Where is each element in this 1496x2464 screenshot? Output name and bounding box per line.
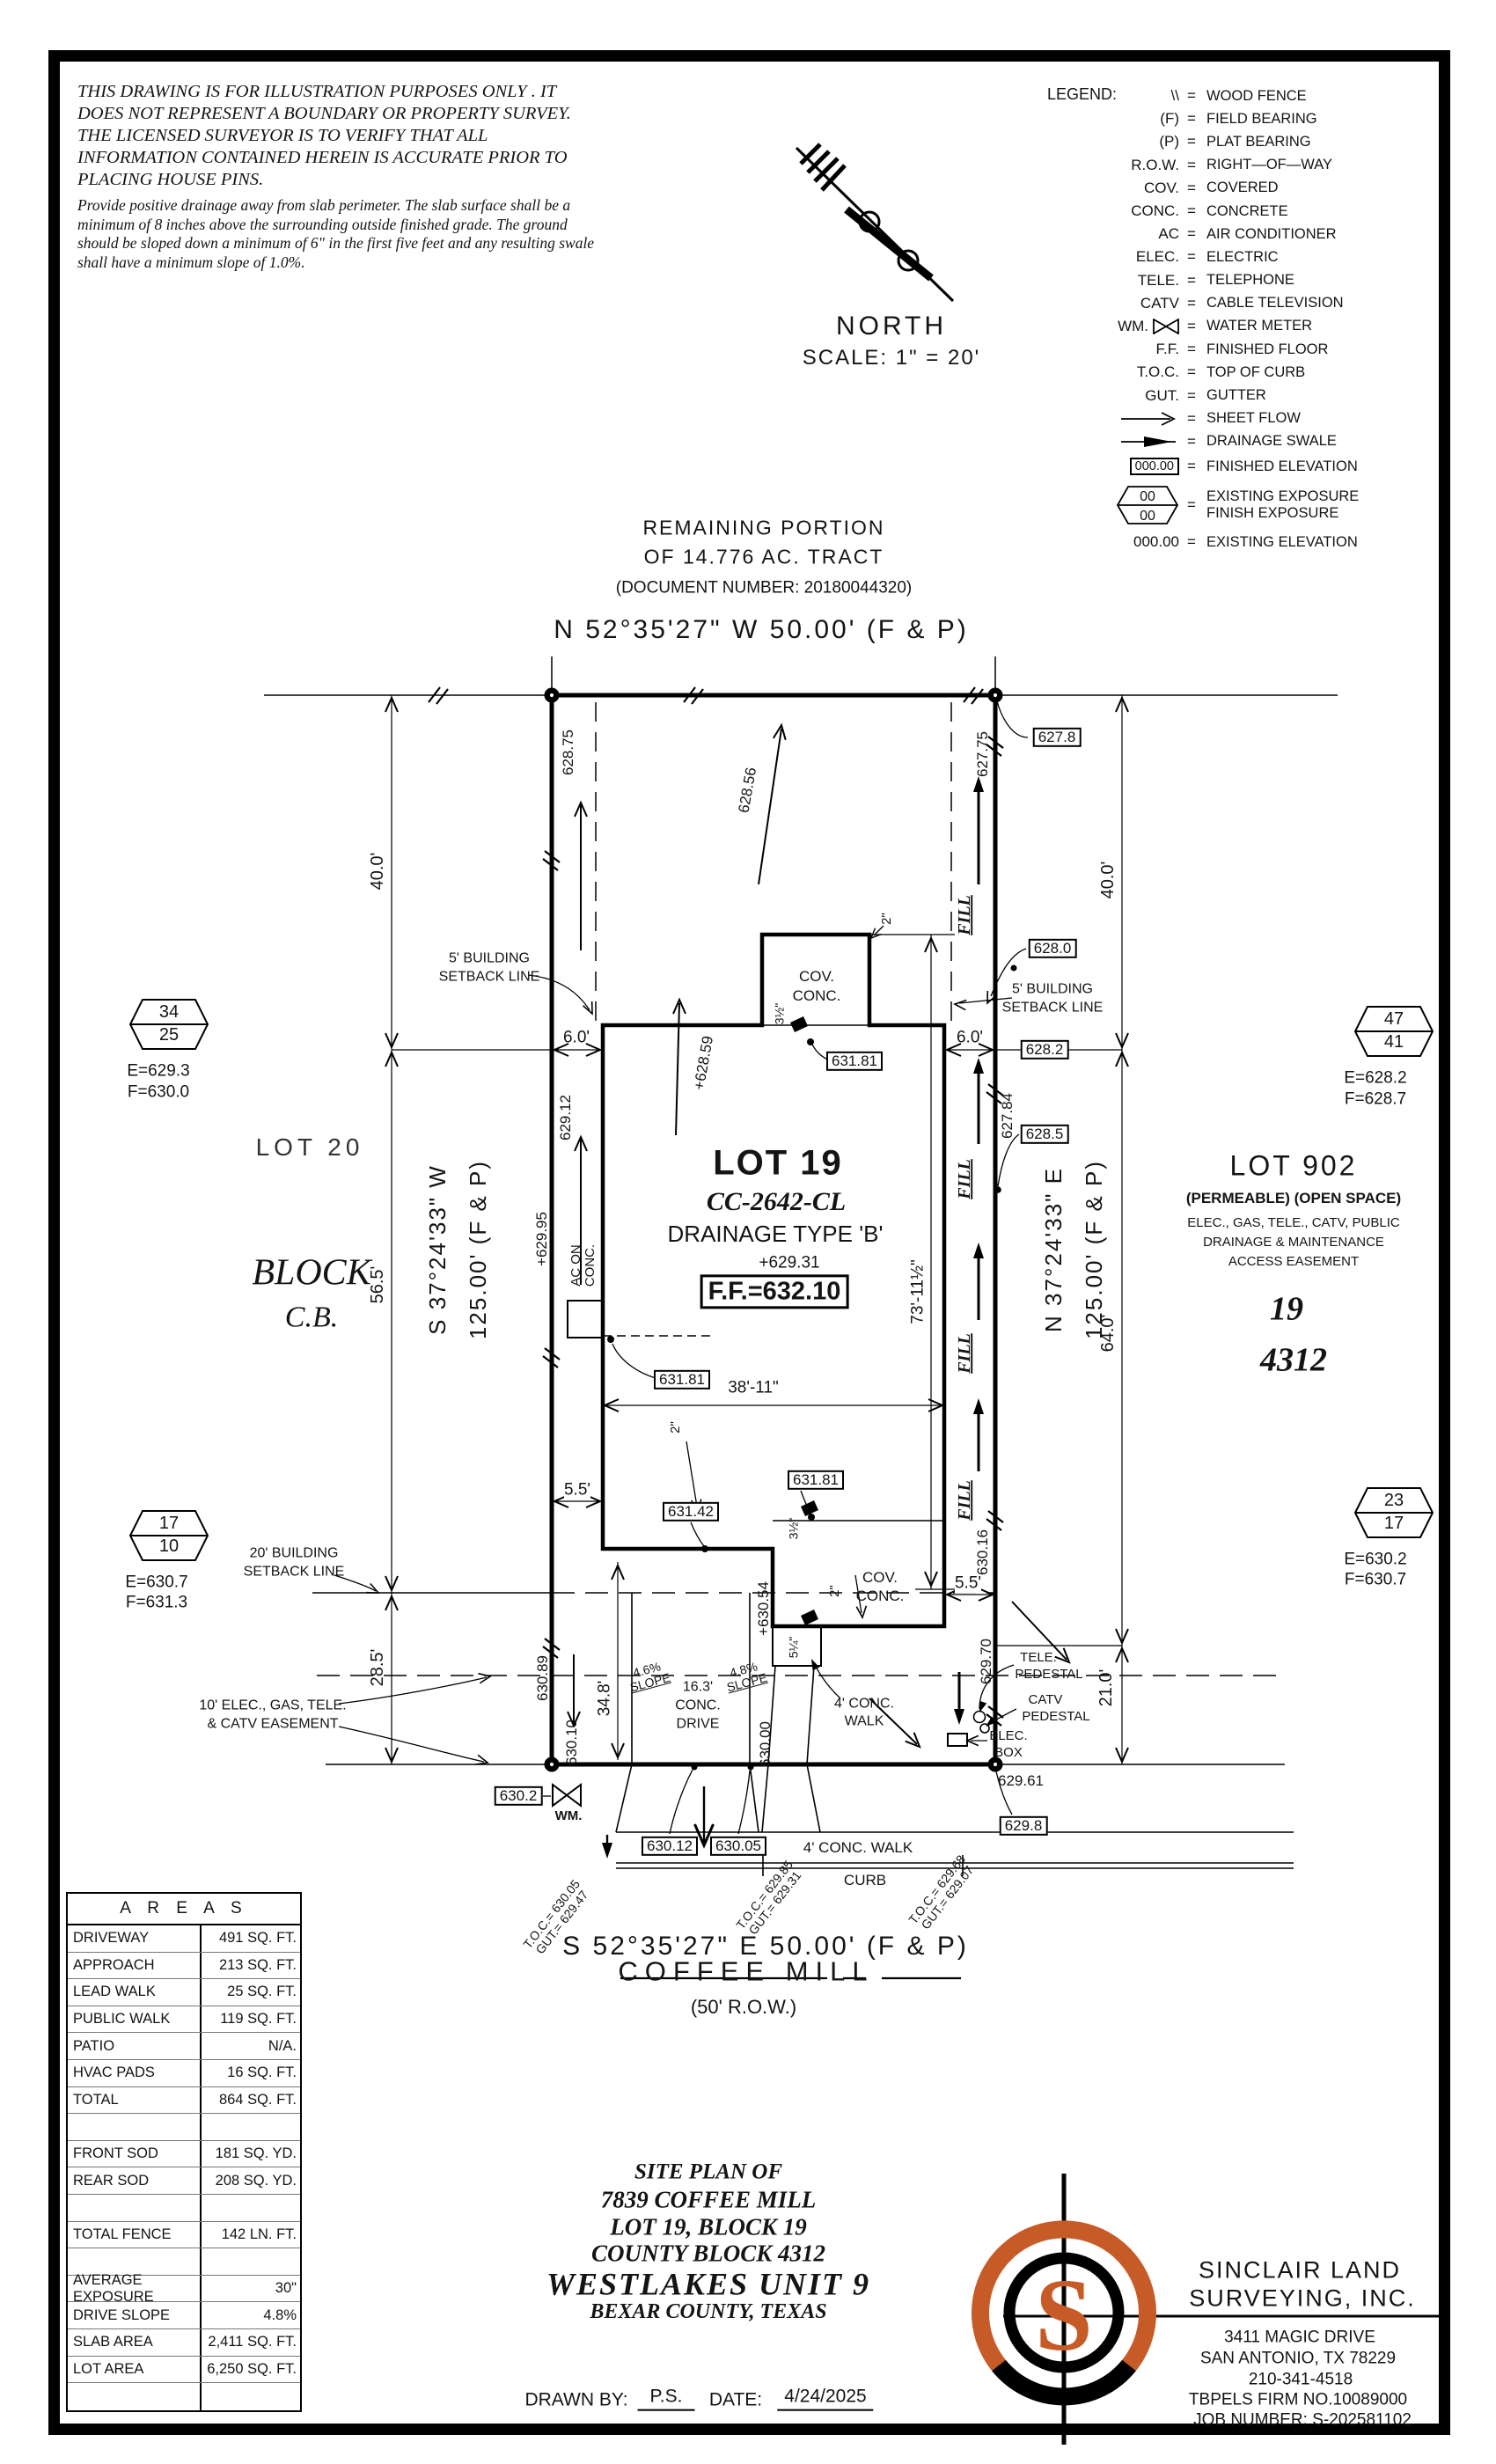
setback20-l1: 20' BUILDING	[250, 1545, 339, 1560]
logo-letter: S	[1035, 2257, 1093, 2372]
legend-row: CONC.=CONCRETE	[1045, 200, 1443, 223]
drawn-by-label: DRAWN BY:	[524, 2391, 627, 2411]
water-meter-label: WM.	[555, 1809, 583, 1823]
tele-pedestal-l2: PEDESTAL	[1015, 1668, 1082, 1682]
finished-floor-elev: F.F.=632.10	[700, 1274, 849, 1309]
hex-tr-existing: E=628.2	[1344, 1070, 1406, 1089]
elev-box-631-81-b: 631.81	[654, 1370, 710, 1390]
legend-row: CATV=CABLE TELEVISION	[1045, 292, 1443, 315]
easement10-l1: 10' ELEC., GAS, TELE.	[199, 1698, 346, 1712]
table-row: HVAC PADS16 SQ. FT.	[68, 2060, 300, 2087]
company-name-l1: SINCLAIR LAND	[1199, 2257, 1401, 2283]
elec-box-l1: ELEC.	[989, 1729, 1027, 1743]
legend: \\=WOOD FENCE (F)=FIELD BEARING (P)=PLAT…	[1045, 84, 1443, 554]
table-row: SLAB AREA2,411 SQ. FT.	[68, 2329, 300, 2357]
table-row	[68, 2195, 300, 2222]
tract-line2: OF 14.776 AC. TRACT	[644, 546, 884, 568]
spot-630-89: 630.89	[535, 1655, 551, 1701]
bearing-east-len: 125.00' (F & P)	[1082, 1160, 1106, 1339]
hex-br-existing: E=630.2	[1344, 1551, 1406, 1570]
dim-5quarter-step: 5¼"	[787, 1637, 800, 1658]
job-number: JOB NUMBER: S-202581102	[1193, 2412, 1412, 2431]
spot-630-16: 630.16	[975, 1529, 991, 1575]
legend-row: =DRAINAGE SWALE	[1045, 430, 1443, 453]
title-l2: 7839 COFFEE MILL	[601, 2187, 817, 2212]
spot-629-61: 629.61	[998, 1773, 1044, 1789]
dim-2-patio: 2"	[828, 1585, 842, 1597]
site-plan-sheet: S THIS DRAWING IS FOR ILLUSTRATION PURPO…	[0, 0, 1496, 2464]
lot902-l4: ACCESS EASEMENT	[1228, 1255, 1359, 1269]
table-row: DRIVEWAY491 SQ. FT.	[68, 1925, 300, 1953]
elev-box-631-81-a: 631.81	[826, 1052, 883, 1071]
table-row: REAR SOD208 SQ. YD.	[68, 2167, 300, 2195]
ac-pad	[568, 1301, 603, 1338]
dim-5-5-right: 5.5'	[955, 1575, 981, 1594]
legend-row: GUT.=GUTTER	[1045, 384, 1443, 407]
lot20-label: LOT 20	[256, 1134, 364, 1161]
date-value: 4/24/2025	[777, 2387, 873, 2411]
table-row: FRONT SOD181 SQ. YD.	[68, 2141, 300, 2168]
legend-row: WM. =WATER METER	[1045, 315, 1443, 338]
table-row: TOTAL FENCE142 LN. FT.	[68, 2222, 300, 2249]
elev-box-628-0: 628.0	[1029, 939, 1077, 958]
dim-40-left: 40.0'	[369, 853, 388, 891]
company-address-l2: SAN ANTONIO, TX 78229	[1200, 2350, 1396, 2369]
bearing-east-dir: N 37°24'33" E	[1041, 1167, 1066, 1332]
hex-tr-bot: 41	[1384, 1033, 1404, 1052]
elev-box-631-42: 631.42	[663, 1502, 719, 1522]
legend-row: 000.00 =FINISHED ELEVATION	[1045, 453, 1443, 480]
dim-73-11: 73'-11½"	[910, 1259, 928, 1324]
table-row	[68, 2114, 300, 2141]
table-row	[68, 2383, 300, 2410]
drive-conc: CONC.	[675, 1698, 721, 1712]
legend-row: TELE.=TELEPHONE	[1045, 269, 1443, 292]
table-row: PATION/A.	[68, 2033, 300, 2060]
date-label: DATE:	[709, 2391, 762, 2411]
setback5-right-l1: 5' BUILDING	[1012, 981, 1093, 996]
elev-box-628-5: 628.5	[1021, 1125, 1069, 1144]
legend-row: R.O.W.=RIGHT—OF—WAY	[1045, 154, 1443, 177]
svg-text:00: 00	[1140, 489, 1155, 504]
legend-row: ELEC.=ELECTRIC	[1045, 246, 1443, 268]
spot-627-75: 627.75	[975, 731, 991, 777]
elev-box-630-05: 630.05	[710, 1837, 766, 1856]
water-meter-icon	[1153, 319, 1179, 334]
dim-5-5-left: 5.5'	[564, 1482, 590, 1500]
legend-row: =SHEET FLOW	[1045, 407, 1443, 430]
north-arrow-icon	[796, 144, 953, 301]
fill-label: FILL	[956, 1480, 975, 1521]
table-row: AVERAGE EXPOSURE30"	[68, 2276, 300, 2303]
title-l4: COUNTY BLOCK 4312	[591, 2240, 825, 2266]
street-name: COFFEE MILL	[618, 1956, 874, 1985]
walk-plan-l1: 4' CONC.	[834, 1696, 894, 1711]
legend-row: (P)=PLAT BEARING	[1045, 130, 1443, 153]
dim-2-porch: 2"	[880, 913, 894, 925]
fill-label: FILL	[956, 1333, 975, 1374]
title-l3: LOT 19, BLOCK 19	[610, 2214, 807, 2240]
tract-line1: REMAINING PORTION	[642, 517, 884, 539]
lot19-label: LOT 19	[713, 1144, 843, 1182]
areas-table-title: A R E A S	[68, 1894, 300, 1925]
spot-630-54: +630.54	[756, 1581, 772, 1636]
street-row: (50' R.O.W.)	[691, 1997, 796, 2018]
easement10-l2: & CATV EASEMENT	[207, 1716, 338, 1731]
wood-fence-icon: \\	[1045, 87, 1187, 105]
title-l6: BEXAR COUNTY, TEXAS	[590, 2301, 826, 2324]
elev-box-629-8: 629.8	[1000, 1816, 1048, 1836]
title-l5: WESTLAKES UNIT 9	[546, 2268, 870, 2302]
hex-bl-bot: 10	[159, 1537, 179, 1557]
spot-630-10: 630.10	[564, 1720, 580, 1765]
hex-tr-finish: F=628.7	[1345, 1091, 1406, 1110]
company-phone: 210-341-4518	[1249, 2372, 1353, 2390]
hex-br-finish: F=630.7	[1345, 1572, 1406, 1590]
hex-tl-bot: 25	[159, 1026, 179, 1045]
lot19-spot-elev: +629.31	[759, 1255, 819, 1273]
disclaimer-note: THIS DRAWING IS FOR ILLUSTRATION PURPOSE…	[77, 81, 605, 273]
hex-tr-top: 47	[1384, 1010, 1404, 1030]
legend-row: COV.=COVERED	[1045, 177, 1443, 200]
drive-drive: DRIVE	[677, 1716, 720, 1731]
svg-text:00: 00	[1140, 509, 1155, 524]
lot902-l3: DRAINAGE & MAINTENANCE	[1203, 1236, 1384, 1250]
lot902-block: 19	[1270, 1291, 1303, 1327]
legend-row: 000.00=EXISTING ELEVATION	[1045, 531, 1443, 554]
spot-629-95: +629.95	[534, 1212, 550, 1266]
dim-34-8: 34.8'	[597, 1681, 615, 1717]
title-l1: SITE PLAN OF	[634, 2160, 782, 2184]
north-label: NORTH	[836, 312, 947, 341]
elev-box-627-8: 627.8	[1033, 728, 1082, 747]
drawn-by-value: P.S.	[638, 2387, 695, 2411]
hex-tl-existing: E=629.3	[127, 1063, 189, 1082]
table-row: APPROACH213 SQ. FT.	[68, 1953, 300, 1980]
hex-bl-finish: F=631.3	[126, 1595, 187, 1613]
spot-629-70: 629.70	[979, 1639, 994, 1684]
public-walk-label: 4' CONC. WALK	[803, 1840, 913, 1856]
table-row: LEAD WALK25 SQ. FT.	[68, 1979, 300, 2006]
elev-box-630-12: 630.12	[642, 1837, 698, 1856]
legend-row: AC=AIR CONDITIONER	[1045, 223, 1443, 246]
areas-table: A R E A S DRIVEWAY491 SQ. FT. APPROACH21…	[66, 1892, 302, 2412]
hex-tl-finish: F=630.0	[128, 1084, 189, 1103]
setback20-l2: SETBACK LINE	[244, 1564, 345, 1579]
block-cb-label: C.B.	[285, 1302, 338, 1335]
setback5-right-l2: SETBACK LINE	[1002, 1000, 1104, 1015]
cov-conc-porch-l1: COV.	[799, 969, 834, 985]
fill-label: FILL	[956, 895, 975, 935]
legend-row: 00 00 = EXISTING EXPOSUREFINISH EXPOSURE	[1045, 480, 1443, 531]
legend-row: T.O.C.=TOP OF CURB	[1045, 361, 1443, 384]
elec-box-l2: BOX	[994, 1746, 1023, 1760]
lot902-l1: (PERMEABLE) (OPEN SPACE)	[1186, 1191, 1401, 1206]
setback5-left-l1: 5' BUILDING	[449, 950, 530, 965]
setback5-left-l2: SETBACK LINE	[439, 969, 540, 984]
dim-2-rear: 2"	[669, 1421, 683, 1434]
lot902-label: LOT 902	[1230, 1151, 1358, 1182]
disclaimer-paragraph-1: THIS DRAWING IS FOR ILLUSTRATION PURPOSE…	[77, 81, 605, 191]
company-name-l2: SURVEYING, INC.	[1189, 2285, 1416, 2311]
dim-3half-porch: 3½"	[773, 1003, 786, 1024]
dim-28-5: 28.5'	[369, 1649, 388, 1687]
table-row: DRIVE SLOPE4.8%	[68, 2302, 300, 2329]
table-row: PUBLIC WALK119 SQ. FT.	[68, 2006, 300, 2034]
dim-3half-patio: 3½"	[787, 1518, 800, 1539]
spot-630-00: 630.00	[758, 1721, 774, 1767]
catv-pedestal-l1: CATV	[1029, 1693, 1063, 1707]
ac-on-conc-label: AC ONCONC.	[569, 1244, 598, 1287]
hex-bl-existing: E=630.7	[125, 1574, 187, 1593]
elev-box-628-2: 628.2	[1021, 1040, 1069, 1060]
bearing-west-dir: S 37°24'33" W	[425, 1164, 450, 1335]
lot19-drainage-type: DRAINAGE TYPE 'B'	[668, 1221, 884, 1246]
scale-label: SCALE: 1" = 20'	[803, 347, 981, 370]
bearing-north: N 52°35'27" W 50.00' (F & P)	[554, 616, 969, 644]
hex-tl-top: 34	[159, 1003, 179, 1023]
dim-40-right: 40.0'	[1099, 862, 1118, 899]
exposure-hex-icon: 00 00	[1116, 483, 1179, 527]
tract-doc-number: (DOCUMENT NUMBER: 20180044320)	[616, 580, 913, 598]
tele-pedestal-l1: TELE.	[1020, 1651, 1057, 1665]
water-meter-symbol	[553, 1785, 581, 1806]
table-row: TOTAL864 SQ. FT.	[68, 2087, 300, 2115]
company-address-l1: 3411 MAGIC DRIVE	[1224, 2329, 1375, 2348]
dim-21: 21.0'	[1097, 1669, 1117, 1707]
disclaimer-paragraph-2: Provide positive drainage away from slab…	[77, 196, 605, 273]
lot902-l2: ELEC., GAS, TELE., CATV, PUBLIC	[1187, 1216, 1399, 1230]
legend-row: \\=WOOD FENCE	[1045, 84, 1443, 107]
finished-elevation-icon: 000.00	[1130, 458, 1179, 475]
hex-br-bot: 17	[1384, 1514, 1404, 1534]
fill-label: FILL	[956, 1159, 975, 1199]
block-label: BLOCK	[252, 1253, 370, 1293]
curb-label: CURB	[844, 1873, 886, 1888]
elev-box-630-2: 630.2	[495, 1786, 543, 1806]
hex-br-top: 23	[1384, 1492, 1404, 1511]
table-row: LOT AREA6,250 SQ. FT.	[68, 2357, 300, 2384]
legend-row: F.F.=FINISHED FLOOR	[1045, 338, 1443, 361]
legend-row: (F)=FIELD BEARING	[1045, 107, 1443, 130]
cov-conc-patio-l2: CONC.	[856, 1588, 905, 1604]
drainage-swale-icon	[1121, 435, 1179, 449]
hex-bl-top: 17	[159, 1514, 179, 1534]
spot-628-75: 628.75	[561, 730, 576, 775]
dim-6-left: 6.0'	[563, 1030, 590, 1048]
dim-6-right: 6.0'	[957, 1030, 983, 1048]
catv-pedestal-l2: PEDESTAL	[1022, 1710, 1089, 1724]
lot19-plan-code: CC-2642-CL	[707, 1188, 846, 1216]
spot-629-12: 629.12	[558, 1095, 574, 1140]
elev-box-631-81-c: 631.81	[788, 1470, 844, 1490]
walk-plan-l2: WALK	[845, 1713, 884, 1728]
sheet-flow-icon	[1121, 412, 1179, 426]
spot-627-84: 627.84	[1000, 1093, 1016, 1139]
drive-width: 16.3'	[683, 1679, 713, 1694]
company-firm-number: TBPELS FIRM NO.10089000	[1189, 2392, 1407, 2410]
cov-conc-porch-l2: CONC.	[793, 988, 841, 1004]
dim-56-5: 56.5'	[369, 1266, 388, 1304]
dim-38-11: 38'-11"	[728, 1380, 779, 1398]
lot902-county-block: 4312	[1260, 1342, 1327, 1378]
bearing-west-len: 125.00' (F & P)	[466, 1160, 490, 1339]
cov-conc-patio-l1: COV.	[862, 1570, 898, 1586]
